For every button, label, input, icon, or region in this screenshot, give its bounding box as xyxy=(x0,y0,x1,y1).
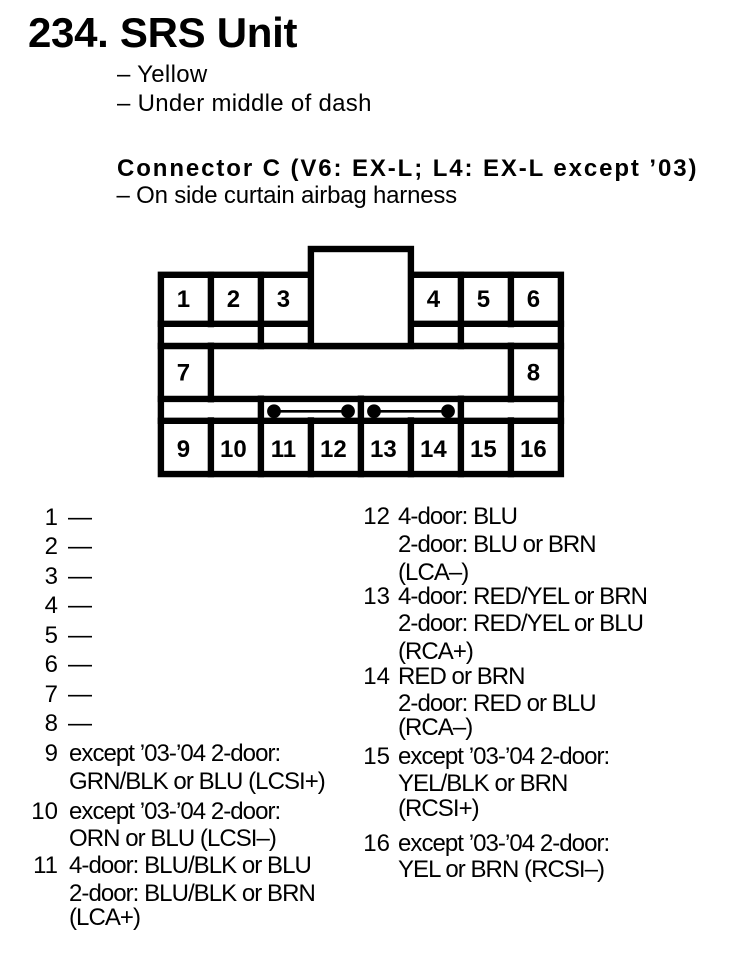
svg-text:5: 5 xyxy=(477,286,490,313)
svg-text:7: 7 xyxy=(177,360,190,387)
svg-text:14: 14 xyxy=(420,436,447,463)
svg-text:15: 15 xyxy=(470,436,497,463)
svg-text:11: 11 xyxy=(271,436,296,463)
svg-text:4: 4 xyxy=(427,286,441,313)
svg-text:3: 3 xyxy=(277,286,290,313)
svg-text:10: 10 xyxy=(220,436,247,463)
svg-text:8: 8 xyxy=(527,360,540,387)
svg-text:2: 2 xyxy=(227,286,240,313)
svg-text:9: 9 xyxy=(177,436,190,463)
svg-text:1: 1 xyxy=(177,286,190,313)
svg-text:12: 12 xyxy=(320,436,347,463)
svg-text:16: 16 xyxy=(520,436,547,463)
svg-text:6: 6 xyxy=(527,286,540,313)
svg-text:13: 13 xyxy=(370,436,397,463)
